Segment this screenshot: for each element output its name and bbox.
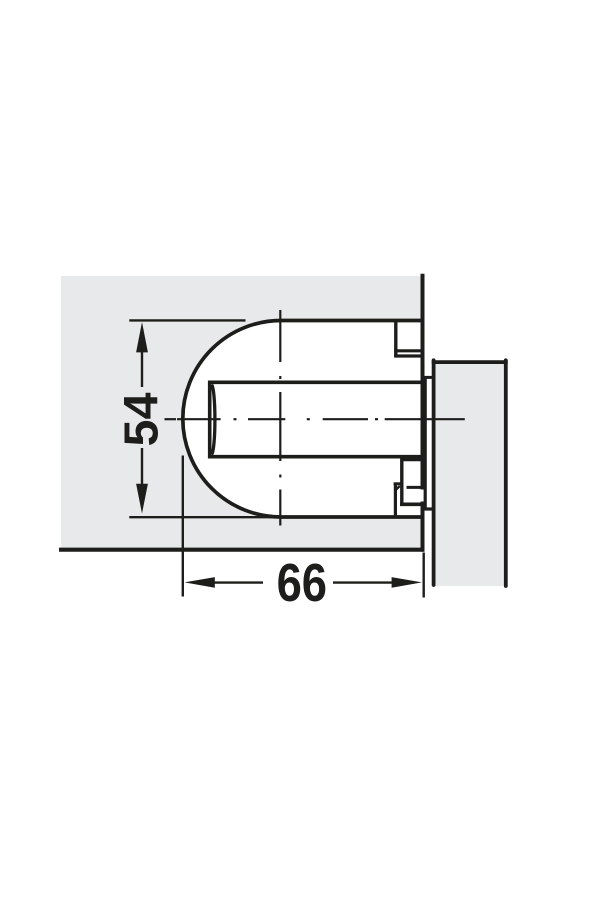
svg-text:54: 54 bbox=[115, 393, 169, 447]
svg-text:66: 66 bbox=[277, 552, 327, 613]
